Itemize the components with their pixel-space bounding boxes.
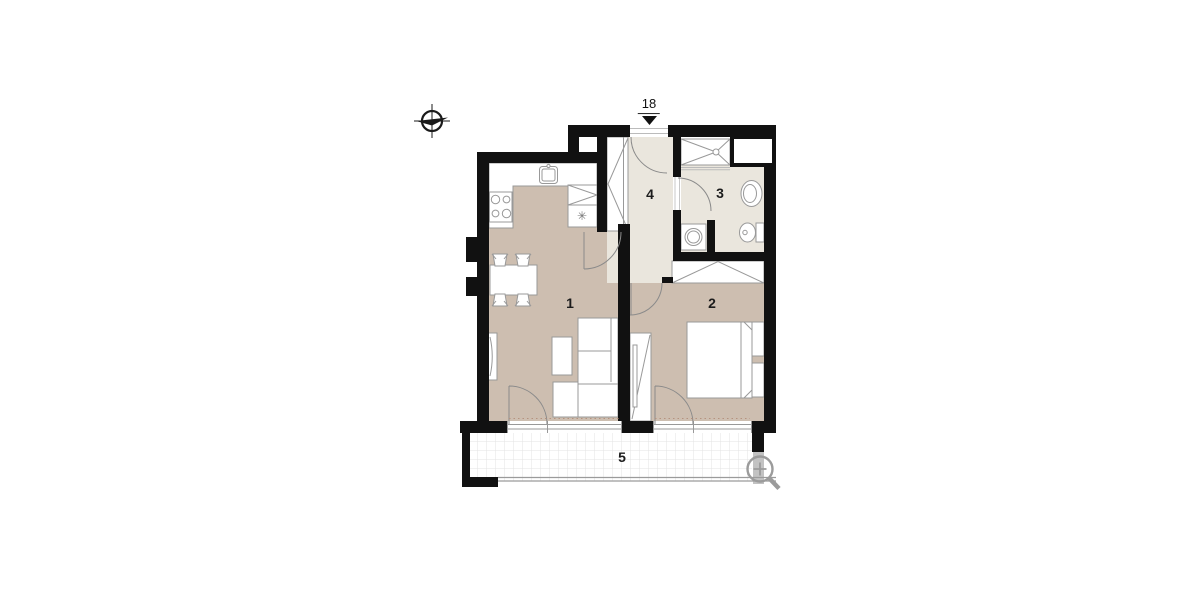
coffee-table — [552, 337, 572, 375]
floor-plan-drawing — [0, 0, 1200, 600]
nightstand — [752, 363, 764, 397]
entrance-arrow-icon — [642, 116, 657, 125]
washing-machine — [681, 224, 706, 250]
freezer-symbol: ✳ — [577, 210, 587, 222]
bed — [687, 322, 764, 398]
unit-number-label: 18 — [638, 97, 660, 114]
nightstand — [752, 322, 764, 356]
window-living-room — [507, 421, 622, 433]
window-bedroom — [653, 421, 752, 433]
balcony-grid — [470, 433, 752, 481]
bathroom-door-opening — [673, 177, 681, 210]
room-label-3: 3 — [716, 186, 724, 200]
toilet — [740, 223, 765, 242]
washbasin — [741, 181, 762, 207]
bedroom-wardrobe-left — [630, 333, 651, 421]
bedroom-wardrobe-top — [672, 261, 764, 283]
kitchen-sink — [540, 164, 558, 183]
shower-tray — [681, 139, 730, 170]
room-label-2: 2 — [708, 296, 716, 310]
floor-plan-canvas: 18 1 2 3 4 5 ✳ — [0, 0, 1200, 600]
compass-icon — [414, 104, 450, 138]
entrance-opening — [630, 124, 668, 137]
stove-icon — [490, 192, 513, 222]
hall-wardrobe — [607, 137, 628, 231]
room-label-5: 5 — [618, 450, 626, 464]
room-label-1: 1 — [566, 296, 574, 310]
room-label-4: 4 — [646, 187, 654, 201]
